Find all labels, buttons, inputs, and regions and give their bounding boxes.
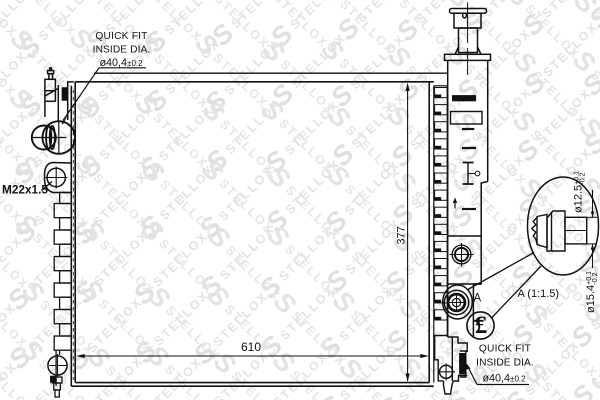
svg-text:QUICK FIT: QUICK FIT <box>95 31 147 42</box>
svg-text:QUICK FIT: QUICK FIT <box>479 344 531 355</box>
svg-text:ø15.4+0.1-0.2: ø15.4+0.1-0.2 <box>585 271 599 313</box>
svg-text:INSIDE DIA.: INSIDE DIA. <box>93 44 151 55</box>
svg-text:377: 377 <box>396 226 408 244</box>
svg-text:ø40,4±0.2: ø40,4±0.2 <box>99 57 143 69</box>
svg-text:INSIDE DIA.: INSIDE DIA. <box>476 357 534 368</box>
svg-text:ø40,4±0.2: ø40,4±0.2 <box>482 373 526 385</box>
svg-text:610: 610 <box>241 340 261 354</box>
svg-text:A (1:1.5): A (1:1.5) <box>518 288 560 300</box>
svg-text:A: A <box>474 293 482 305</box>
svg-text:£: £ <box>475 312 488 339</box>
svg-text:ø12.5+0.1-0.2: ø12.5+0.1-0.2 <box>573 171 587 213</box>
svg-text:M22x1.5: M22x1.5 <box>2 183 48 197</box>
